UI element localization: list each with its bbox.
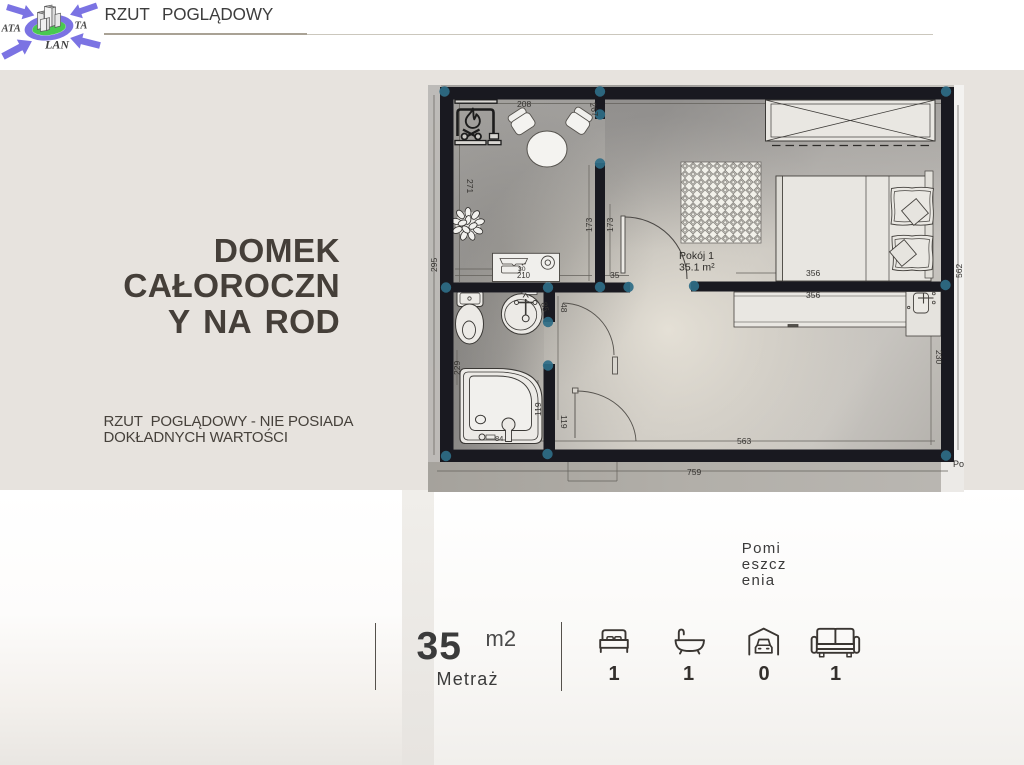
svg-text:173: 173 [584, 218, 594, 232]
svg-text:271: 271 [465, 179, 475, 193]
svg-text:356: 356 [806, 268, 820, 278]
svg-text:230: 230 [934, 350, 944, 364]
svg-text:Pokój 1: Pokój 1 [679, 250, 714, 262]
svg-text:84: 84 [495, 434, 503, 443]
svg-text:295: 295 [429, 258, 439, 272]
svg-text:ATA: ATA [1, 24, 21, 35]
svg-text:356: 356 [806, 290, 820, 300]
svg-text:562: 562 [954, 264, 964, 278]
svg-text:173: 173 [605, 218, 615, 232]
svg-text:563: 563 [737, 436, 751, 446]
svg-text:119: 119 [559, 415, 569, 429]
svg-text:Po: Po [953, 459, 964, 469]
svg-text:35: 35 [610, 270, 620, 280]
svg-text:35.1 m²: 35.1 m² [679, 262, 715, 274]
svg-text:TA: TA [75, 21, 88, 32]
svg-text:208: 208 [517, 99, 531, 109]
svg-text:759: 759 [687, 467, 701, 477]
svg-text:30: 30 [518, 266, 526, 273]
svg-text:48: 48 [559, 303, 569, 313]
svg-text:229: 229 [452, 361, 462, 375]
svg-text:119: 119 [533, 402, 543, 416]
svg-text:LAN: LAN [44, 38, 70, 52]
